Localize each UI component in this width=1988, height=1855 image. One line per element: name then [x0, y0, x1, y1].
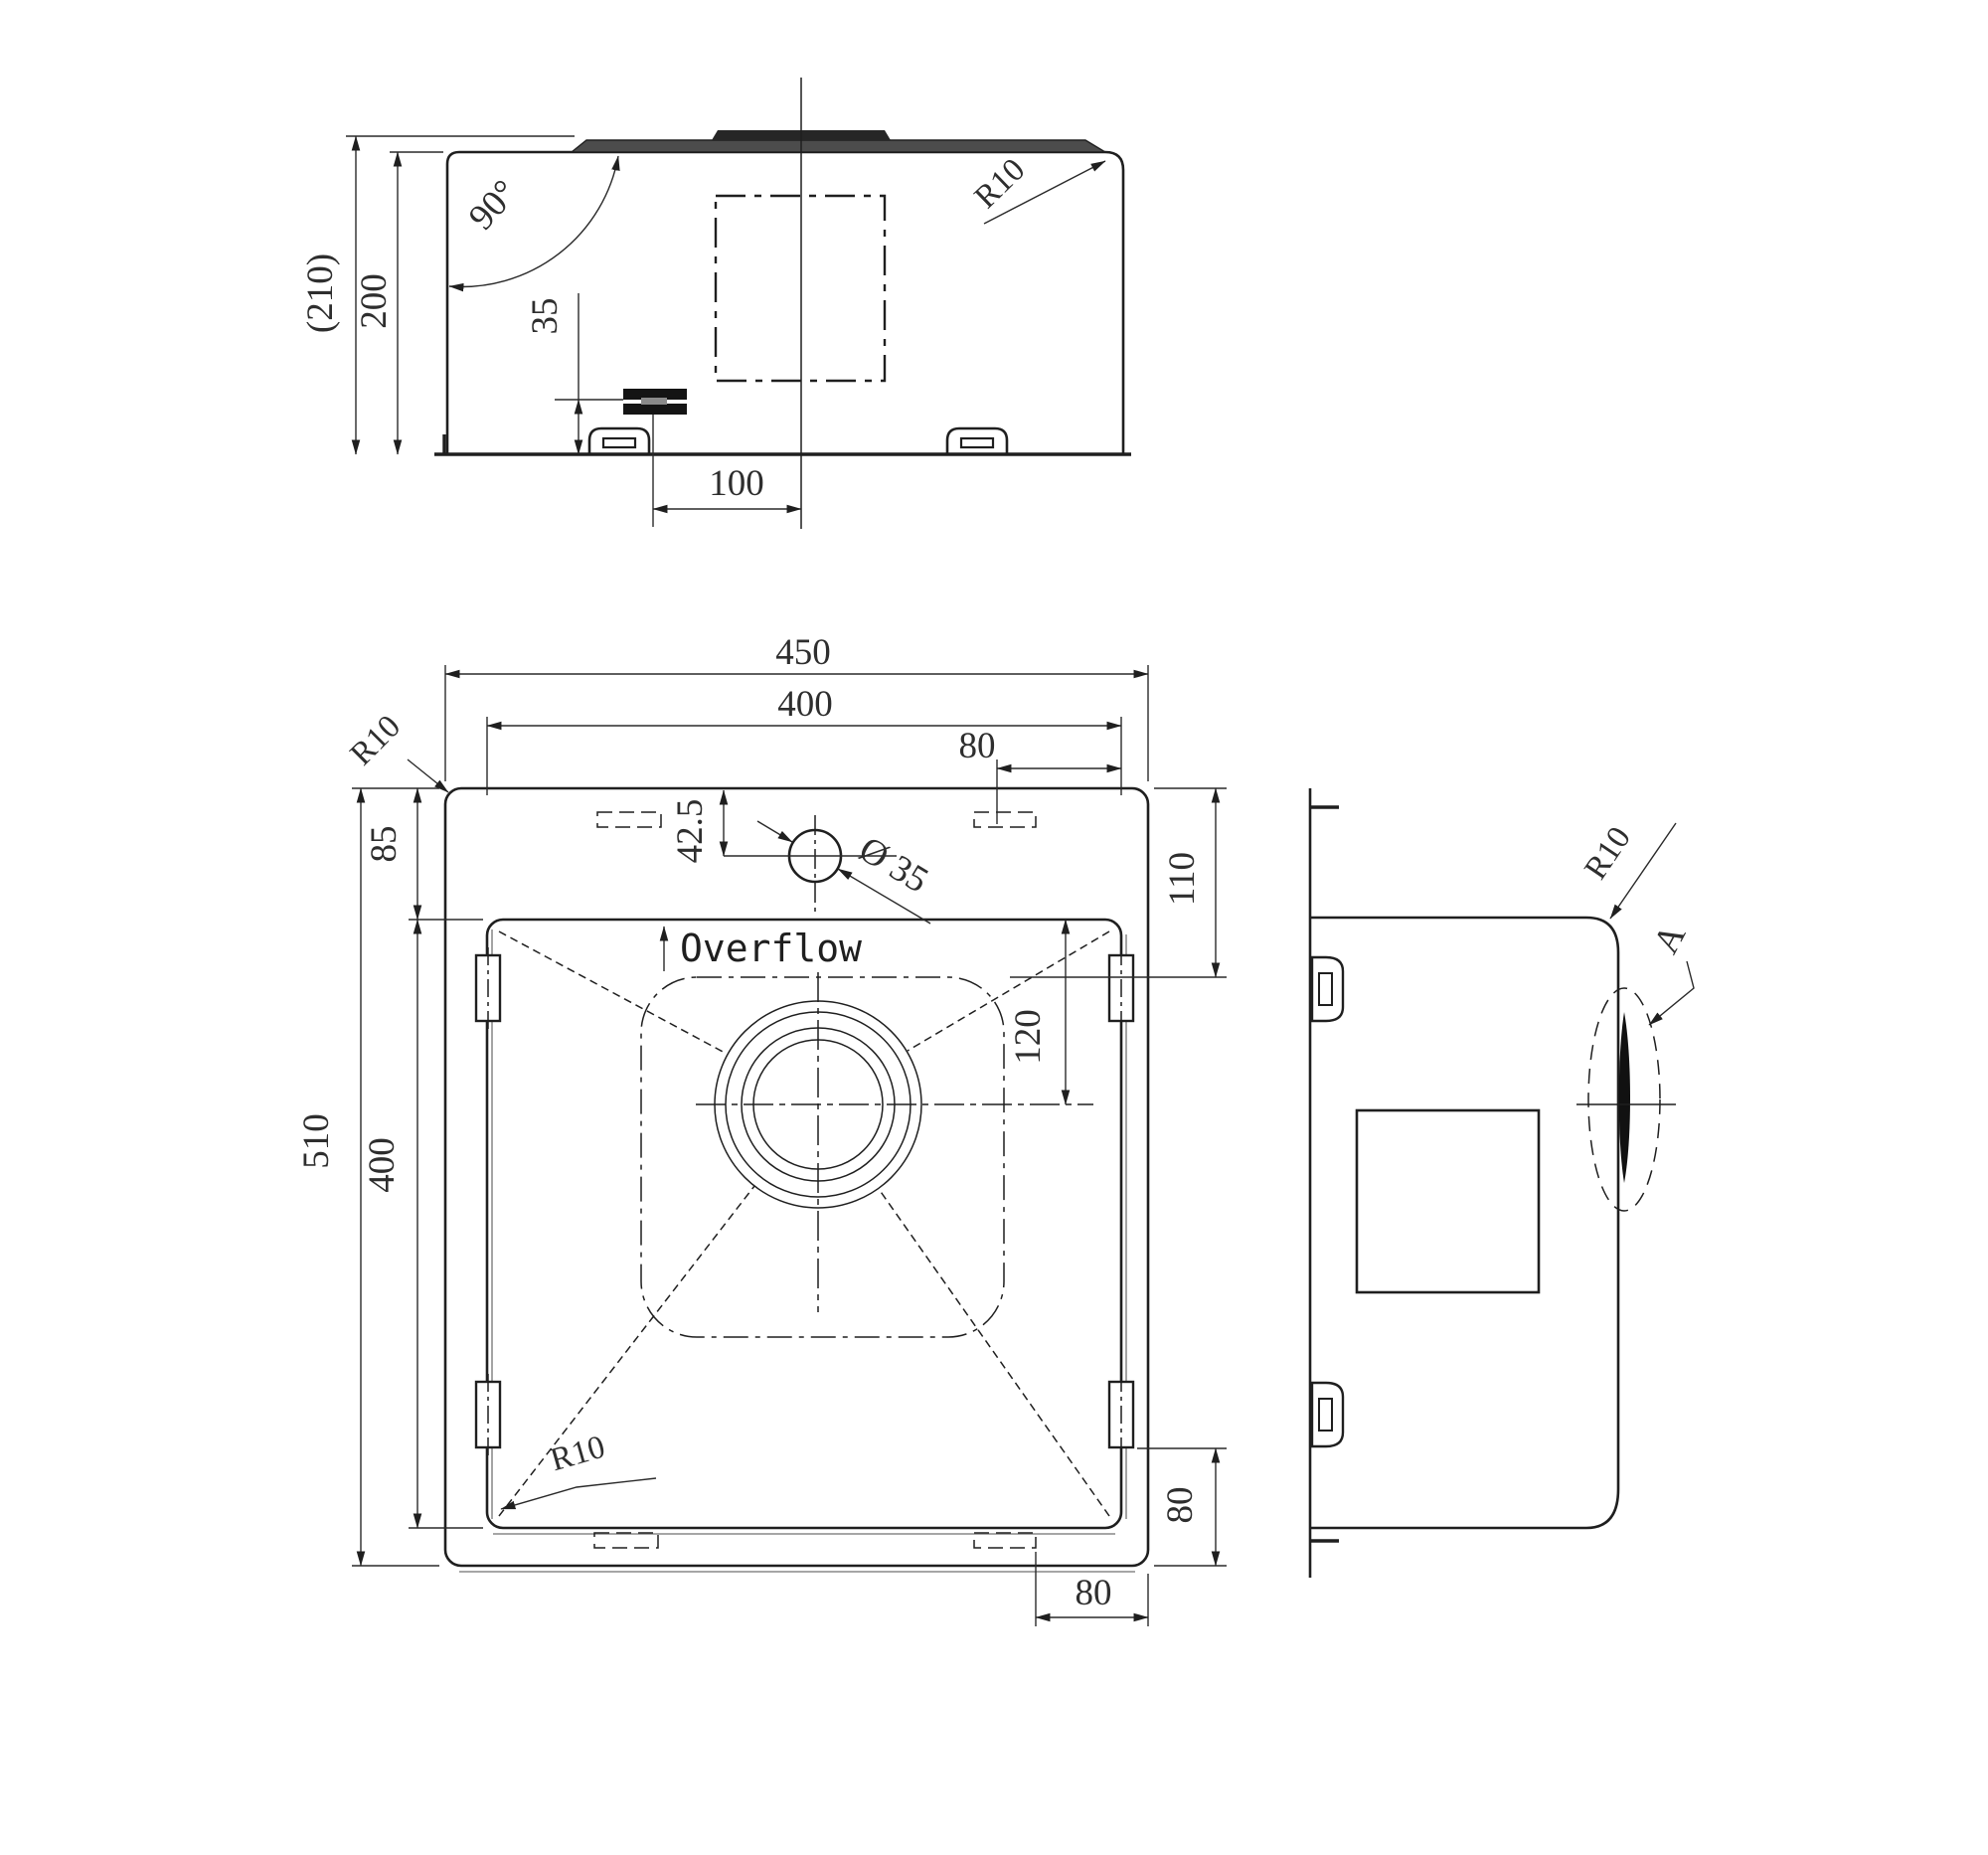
plan-label-rim-right-top: 110: [1162, 852, 1203, 906]
plan-label-overflow: Overflow: [680, 927, 862, 970]
side-clip-bottom: [1312, 1383, 1343, 1446]
plan-label-drain-offset: 120: [1008, 1009, 1049, 1065]
plan-label-bowl-length: 400: [362, 1137, 403, 1193]
plan-label-faucet-offset: 42.5: [670, 799, 711, 864]
side-clip-top: [1312, 957, 1343, 1021]
plan-label-overall-length: 510: [296, 1113, 337, 1169]
sheet-background: [0, 0, 1988, 1855]
front-label-height: 200: [354, 273, 395, 329]
plan-label-rim-front: 85: [364, 826, 405, 863]
plan-label-bottom-cutout-offset: 80: [1076, 1573, 1112, 1613]
front-label-clamp-offset: 100: [709, 463, 764, 504]
plan-label-rim-right-bottom: 80: [1160, 1487, 1201, 1524]
front-rim-band: [572, 140, 1105, 152]
sink-technical-drawing: (210) 200 90° 35 100 R10: [0, 0, 1988, 1855]
drawing-sheet: (210) 200 90° 35 100 R10: [0, 0, 1988, 1855]
front-label-overall-height: (210): [300, 253, 341, 333]
plan-overflow: Overflow: [664, 927, 862, 971]
plan-label-overall-width: 450: [775, 632, 831, 673]
plan-label-bowl-width: 400: [777, 684, 833, 725]
plan-label-top-cutout-offset: 80: [959, 726, 996, 766]
front-label-clamp-height: 35: [525, 298, 566, 335]
